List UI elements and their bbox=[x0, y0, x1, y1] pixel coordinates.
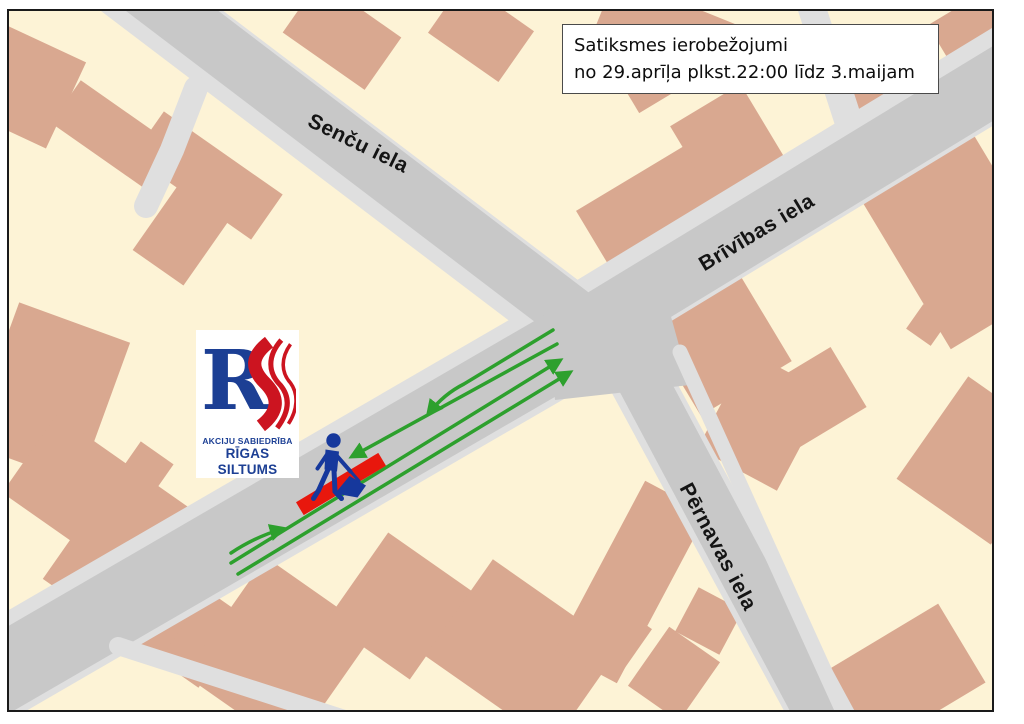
rigas-siltums-logo: R AKCIJU SABIEDRĪBA RĪGAS SILTUMS bbox=[196, 330, 299, 478]
intersection-patch bbox=[545, 295, 690, 400]
notice-dates: no 29.aprīļa plkst.22:00 līdz 3.maijam bbox=[574, 59, 927, 86]
notice-box: Satiksmes ierobežojumi no 29.aprīļa plks… bbox=[562, 24, 939, 94]
worker-head bbox=[326, 433, 340, 447]
logo-company-type: AKCIJU SABIEDRĪBA bbox=[196, 436, 299, 446]
map-canvas bbox=[0, 0, 1024, 724]
logo-flame-s-icon bbox=[238, 336, 296, 432]
logo-monogram: R bbox=[196, 332, 299, 434]
logo-company-name: RĪGAS SILTUMS bbox=[196, 446, 299, 478]
traffic-restriction-map-sheet: Senču iela Brīvības iela Pērnavas iela S… bbox=[0, 0, 1024, 724]
notice-title: Satiksmes ierobežojumi bbox=[574, 32, 927, 59]
